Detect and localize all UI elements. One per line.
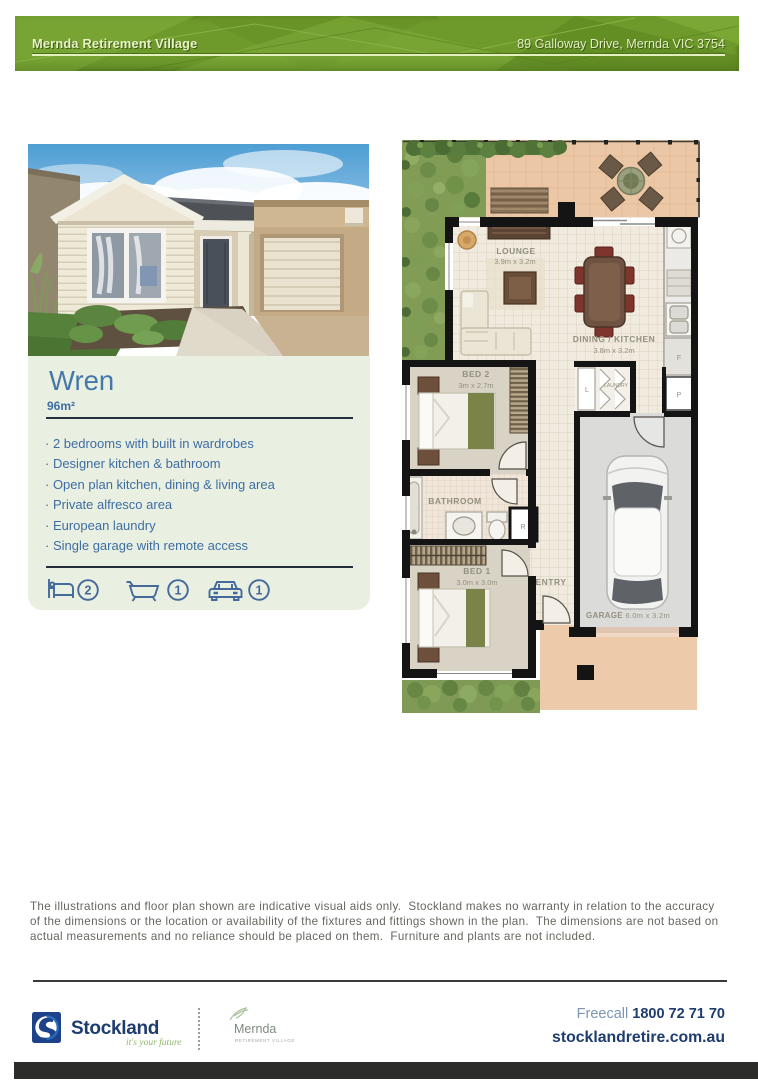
svg-text:BED 2: BED 2 bbox=[462, 369, 490, 379]
svg-text:2: 2 bbox=[85, 584, 92, 598]
svg-text:GARAGE 6.0m x 3.2m: GARAGE 6.0m x 3.2m bbox=[586, 611, 670, 620]
svg-text:1: 1 bbox=[256, 584, 263, 598]
svg-text:LAUNDRY: LAUNDRY bbox=[604, 383, 628, 389]
svg-text:3.0m x 3.0m: 3.0m x 3.0m bbox=[456, 578, 497, 587]
svg-text:1: 1 bbox=[175, 584, 182, 598]
svg-text:BATHROOM: BATHROOM bbox=[428, 496, 481, 506]
svg-text:L: L bbox=[585, 387, 589, 394]
svg-text:BED 1: BED 1 bbox=[463, 566, 491, 576]
svg-text:3m x 2.7m: 3m x 2.7m bbox=[458, 381, 493, 390]
svg-text:RETIREMENT VILLAGE: RETIREMENT VILLAGE bbox=[235, 1038, 295, 1043]
svg-text:P: P bbox=[677, 392, 682, 399]
svg-text:Stockland: Stockland bbox=[71, 1018, 159, 1039]
svg-text:it's your future: it's your future bbox=[126, 1037, 182, 1048]
svg-text:F: F bbox=[677, 355, 681, 362]
svg-text:Mernda: Mernda bbox=[234, 1022, 276, 1036]
svg-text:3.9m x 3.2m: 3.9m x 3.2m bbox=[494, 257, 535, 266]
svg-text:R: R bbox=[520, 524, 525, 531]
svg-text:3.8m x 3.2m: 3.8m x 3.2m bbox=[593, 346, 634, 355]
svg-text:DINING / KITCHEN: DINING / KITCHEN bbox=[573, 334, 656, 344]
svg-text:LOUNGE: LOUNGE bbox=[496, 246, 535, 256]
svg-text:ENTRY: ENTRY bbox=[536, 577, 567, 587]
